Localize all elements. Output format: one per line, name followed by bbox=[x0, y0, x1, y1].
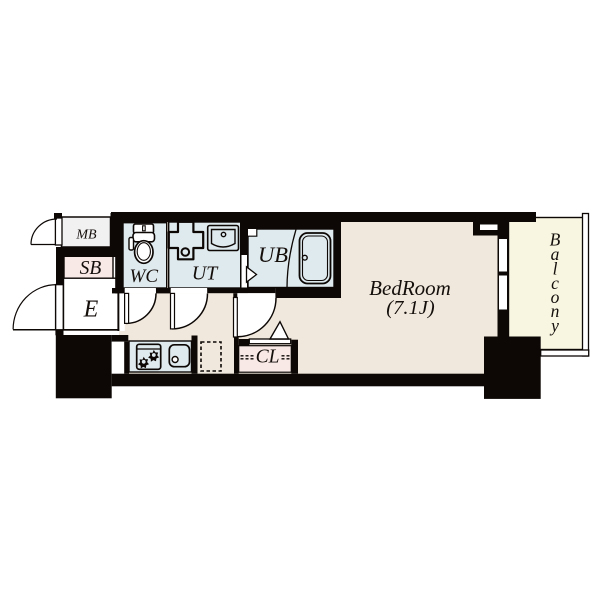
svg-text:(7.1J): (7.1J) bbox=[386, 297, 435, 319]
svg-text:SB: SB bbox=[80, 258, 102, 279]
svg-text:UB: UB bbox=[258, 242, 288, 267]
svg-text:CL: CL bbox=[256, 347, 280, 368]
svg-text:MB: MB bbox=[75, 228, 97, 243]
svg-text:UT: UT bbox=[192, 263, 219, 285]
svg-text:WC: WC bbox=[130, 266, 159, 287]
svg-text:E: E bbox=[83, 297, 99, 323]
svg-text:y: y bbox=[549, 316, 559, 336]
